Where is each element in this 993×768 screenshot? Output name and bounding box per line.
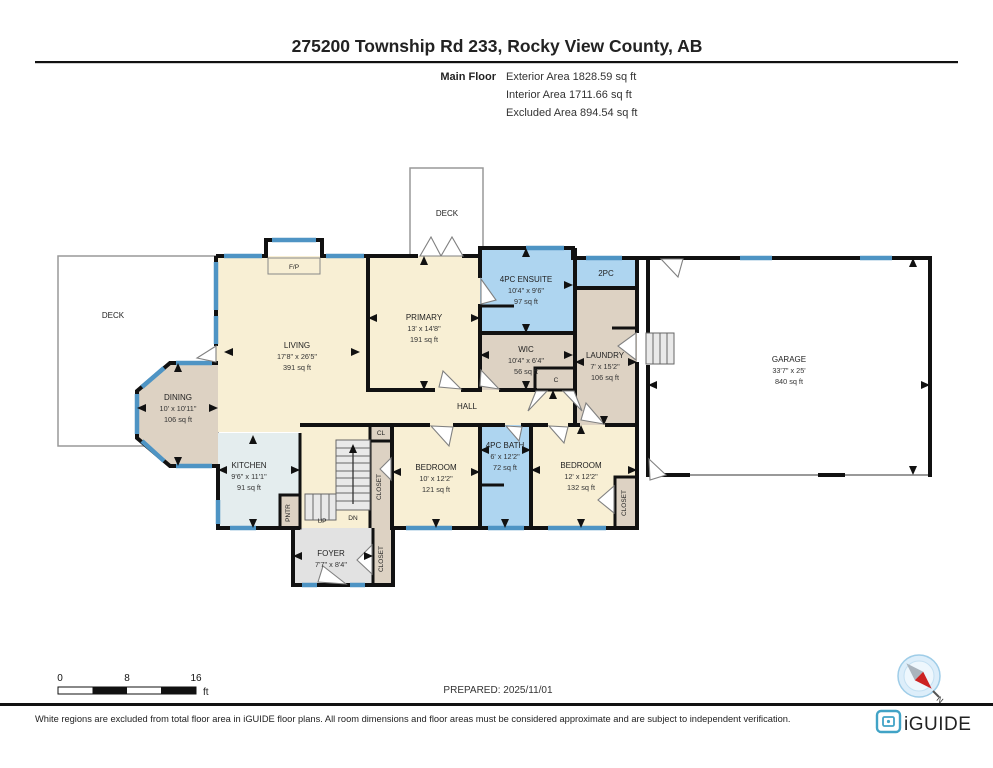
- bath-area: 72 sq ft: [493, 463, 517, 472]
- ensuite-area: 97 sq ft: [514, 297, 538, 306]
- living-label: LIVING: [284, 341, 310, 350]
- bedroom-left-label: BEDROOM: [415, 463, 457, 472]
- floorplan-page: 275200 Township Rd 233, Rocky View Count…: [0, 0, 993, 768]
- stairs-up-label: UP: [317, 518, 326, 525]
- closet-cl-label: CL: [377, 430, 386, 437]
- scale-bar: 0 8 16 ft: [57, 673, 209, 698]
- closet-foyer-label: CLOSET: [378, 546, 385, 572]
- stairs-down-label: DN: [348, 515, 358, 522]
- floorplan-canvas: 275200 Township Rd 233, Rocky View Count…: [0, 0, 993, 768]
- kitchen-dims: 9'6" x 11'1": [231, 472, 267, 481]
- kitchen-area: 91 sq ft: [237, 483, 261, 492]
- footer-rule: [0, 703, 993, 706]
- primary-label: PRIMARY: [406, 313, 443, 322]
- fireplace: F/P: [268, 258, 320, 274]
- footer: White regions are excluded from total fl…: [0, 703, 993, 735]
- header: 275200 Township Rd 233, Rocky View Count…: [35, 36, 958, 119]
- scale-tick-16: 16: [190, 673, 202, 684]
- garage-dims: 33'7" x 25': [772, 366, 806, 375]
- living-dims: 17'8" x 26'5": [277, 352, 317, 361]
- excluded-area: Excluded Area 894.54 sq ft: [506, 107, 637, 119]
- primary-dims: 13' x 14'8": [407, 324, 441, 333]
- dining-label: DINING: [164, 393, 192, 402]
- interior-area: Interior Area 1711.66 sq ft: [506, 89, 632, 101]
- primary-area: 191 sq ft: [410, 335, 438, 344]
- dining-area: 106 sq ft: [164, 415, 192, 424]
- ensuite-label: 4PC ENSUITE: [500, 275, 552, 284]
- scale-unit: ft: [203, 687, 209, 698]
- page-title: 275200 Township Rd 233, Rocky View Count…: [292, 36, 703, 56]
- kitchen-label: KITCHEN: [231, 461, 266, 470]
- ensuite-dims: 10'4" x 9'6": [508, 286, 544, 295]
- bedroom-left-area: 121 sq ft: [422, 485, 450, 494]
- deck-top-label: DECK: [436, 209, 459, 218]
- foyer-dims: 7'7" x 8'4": [315, 560, 347, 569]
- wic-area: 56 sq ft: [514, 367, 538, 376]
- fireplace-label: F/P: [289, 264, 299, 271]
- scale-tick-0: 0: [57, 673, 63, 684]
- room-primary: [368, 256, 480, 390]
- garage-area: 840 sq ft: [775, 377, 803, 386]
- laundry-dims: 7' x 15'2": [590, 362, 620, 371]
- deck-left-label: DECK: [102, 311, 125, 320]
- hall-label: HALL: [457, 402, 478, 411]
- iguide-logo: iGUIDE: [877, 711, 971, 735]
- prepared-date: PREPARED: 2025/11/01: [443, 685, 553, 696]
- closet-bedroom-label: CLOSET: [621, 490, 628, 516]
- bath-label: 4PC BATH: [486, 441, 525, 450]
- laundry-label: LAUNDRY: [586, 351, 625, 360]
- bedroom-right-dims: 12' x 12'2": [564, 472, 598, 481]
- bedroom-right-label: BEDROOM: [560, 461, 602, 470]
- footer-disclaimer: White regions are excluded from total fl…: [35, 714, 791, 724]
- wic-dims: 10'4" x 6'4": [508, 356, 544, 365]
- foyer-label: FOYER: [317, 549, 345, 558]
- bedroom-right-area: 132 sq ft: [567, 483, 595, 492]
- header-rule: [35, 61, 958, 63]
- living-area: 391 sq ft: [283, 363, 311, 372]
- exterior-area: Exterior Area 1828.59 sq ft: [506, 71, 636, 83]
- laundry-area: 106 sq ft: [591, 373, 619, 382]
- bath-dims: 6' x 12'2": [490, 452, 520, 461]
- compass-icon: N: [898, 655, 945, 705]
- pantry-label: PNTR: [285, 504, 292, 522]
- iguide-logo-text: iGUIDE: [904, 714, 971, 735]
- floor-label: Main Floor: [440, 71, 496, 83]
- dining-dims: 10' x 10'11": [160, 404, 197, 413]
- wic-label: WIC: [518, 345, 534, 354]
- closet-stairs-label: CLOSET: [376, 474, 383, 500]
- closet-c-label: C: [554, 377, 559, 384]
- scale-tick-8: 8: [124, 673, 130, 684]
- 2pc-label: 2PC: [598, 269, 614, 278]
- garage-label: GARAGE: [772, 355, 806, 364]
- bedroom-left-dims: 10' x 12'2": [419, 474, 453, 483]
